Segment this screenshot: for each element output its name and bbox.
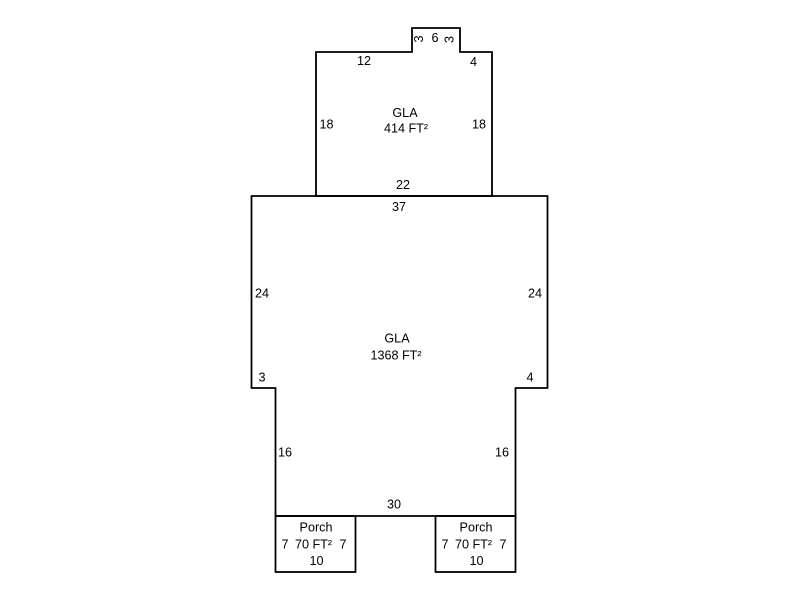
svg-text:30: 30 <box>387 498 401 512</box>
svg-text:7: 7 <box>499 538 506 552</box>
svg-text:7: 7 <box>281 538 288 552</box>
svg-text:414 FT²: 414 FT² <box>384 122 428 136</box>
svg-text:70 FT²: 70 FT² <box>295 538 332 552</box>
svg-text:18: 18 <box>472 118 486 132</box>
svg-text:GLA: GLA <box>392 106 418 120</box>
svg-text:3: 3 <box>443 36 457 43</box>
svg-text:24: 24 <box>528 287 542 301</box>
svg-text:1368 FT²: 1368 FT² <box>370 349 421 363</box>
svg-text:10: 10 <box>309 554 323 568</box>
svg-text:3: 3 <box>258 371 265 385</box>
svg-text:24: 24 <box>255 287 269 301</box>
svg-text:4: 4 <box>526 371 533 385</box>
svg-text:37: 37 <box>392 200 406 214</box>
svg-text:GLA: GLA <box>384 332 410 346</box>
svg-text:4: 4 <box>470 55 477 69</box>
svg-text:Porch: Porch <box>460 521 493 535</box>
svg-text:7: 7 <box>339 538 346 552</box>
svg-text:3: 3 <box>412 35 426 42</box>
svg-text:22: 22 <box>396 178 410 192</box>
svg-text:10: 10 <box>469 554 483 568</box>
svg-text:7: 7 <box>441 538 448 552</box>
svg-text:70 FT²: 70 FT² <box>455 538 492 552</box>
svg-text:Porch: Porch <box>300 521 333 535</box>
svg-text:16: 16 <box>495 446 509 460</box>
svg-text:12: 12 <box>357 54 371 68</box>
svg-text:18: 18 <box>319 118 333 132</box>
svg-text:16: 16 <box>278 446 292 460</box>
svg-text:6: 6 <box>431 31 438 45</box>
